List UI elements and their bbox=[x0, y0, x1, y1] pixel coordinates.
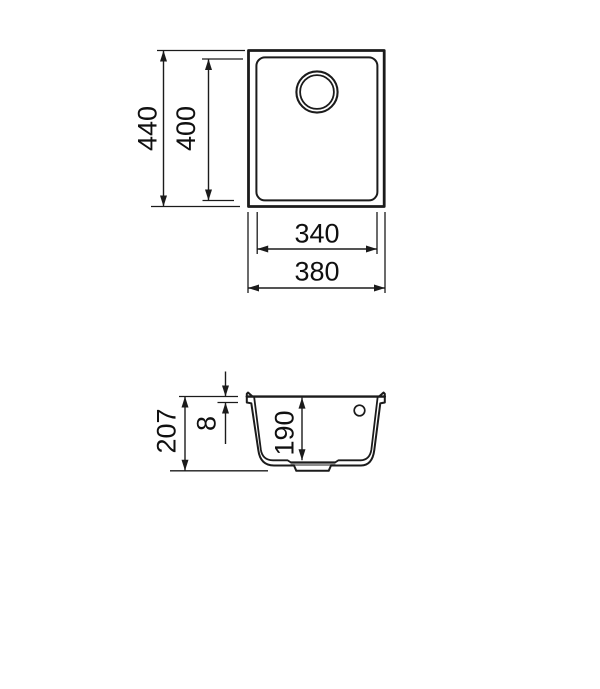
section-view: 207 8 190 bbox=[152, 372, 385, 471]
drain-inner-circle bbox=[300, 75, 334, 109]
dim-label-basin-depth: 190 bbox=[270, 410, 300, 455]
sink-basin-outline bbox=[256, 57, 377, 200]
sink-technical-drawing: 440 400 340 380 bbox=[0, 0, 600, 689]
dim-label-basin-height: 400 bbox=[171, 106, 201, 151]
sink-outer-rim-outline bbox=[249, 51, 385, 207]
dim-basin-depth: 190 bbox=[270, 398, 303, 461]
dim-label-rim-thickness: 8 bbox=[192, 416, 222, 431]
dim-label-overall-height: 440 bbox=[133, 106, 163, 151]
drain-outer-circle bbox=[296, 71, 337, 112]
dim-basin-width: 340 bbox=[257, 212, 377, 254]
overflow-hole bbox=[354, 405, 365, 416]
drawing-canvas: 440 400 340 380 bbox=[0, 0, 600, 689]
dim-rim-thickness: 8 bbox=[192, 372, 239, 445]
dim-basin-height: 400 bbox=[171, 59, 243, 201]
dim-label-overall-depth: 207 bbox=[152, 408, 182, 453]
dim-overall-depth: 207 bbox=[152, 397, 269, 471]
top-view: 440 400 340 380 bbox=[133, 51, 386, 294]
dim-label-overall-width: 380 bbox=[294, 257, 339, 287]
dim-label-basin-width: 340 bbox=[294, 219, 339, 249]
